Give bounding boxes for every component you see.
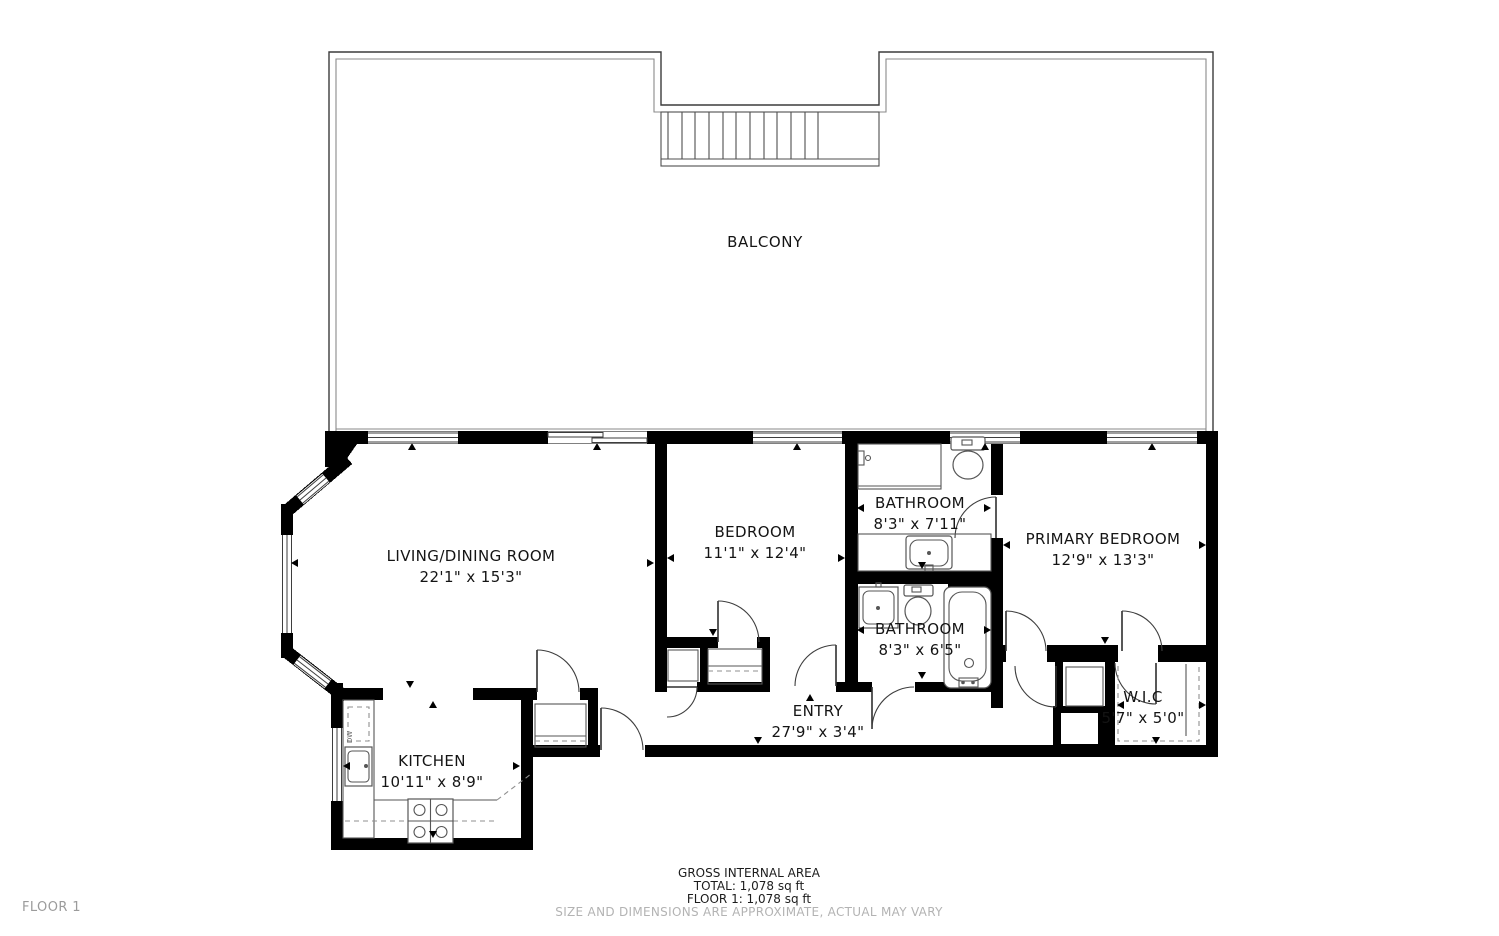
shower: [858, 444, 941, 489]
room-dims-living: 22'1" x 15'3": [420, 568, 523, 586]
hall-nook-shelf: [1066, 667, 1103, 706]
room-dims-kitchen: 10'11" x 8'9": [381, 773, 484, 791]
room-label-wic: W.I.C: [1123, 688, 1163, 706]
room-label-bathroom1: BATHROOM: [875, 494, 965, 512]
room-label-bathroom2: BATHROOM: [875, 620, 965, 638]
room-dims-bedroom: 11'1" x 12'4": [704, 544, 807, 562]
balcony-label: BALCONY: [727, 233, 803, 251]
stove: [408, 799, 453, 843]
room-label-living: LIVING/DINING ROOM: [387, 547, 556, 565]
room-dims-wic: 5'7" x 5'0": [1101, 709, 1184, 727]
room-label-entry: ENTRY: [793, 702, 844, 720]
footer: GROSS INTERNAL AREA TOTAL: 1,078 sq ft F…: [22, 866, 943, 919]
room-label-primary-bedroom: PRIMARY BEDROOM: [1026, 530, 1181, 548]
footer-title: GROSS INTERNAL AREA: [678, 866, 821, 880]
floor-plan-svg: BALCONY LIVING/DINING ROOM 22'1" x 15'3"…: [0, 0, 1499, 936]
room-dims-entry: 27'9" x 3'4": [772, 723, 865, 741]
floor-label: FLOOR 1: [22, 900, 81, 915]
room-dims-bathroom2: 8'3" x 6'5": [878, 641, 961, 659]
room-label-bedroom: BEDROOM: [714, 523, 795, 541]
room-dims-primary-bedroom: 12'9" x 13'3": [1052, 551, 1155, 569]
toilet: [951, 437, 985, 479]
floor-plan-page: BALCONY LIVING/DINING ROOM 22'1" x 15'3"…: [0, 0, 1499, 936]
footer-total: TOTAL: 1,078 sq ft: [693, 879, 805, 893]
toilet: [904, 585, 933, 625]
dishwasher-label: DW: [346, 731, 354, 743]
closet-shelf: [708, 649, 762, 684]
room-label-kitchen: KITCHEN: [398, 752, 466, 770]
room-dims-bathroom1: 8'3" x 7'11": [874, 515, 967, 533]
closet-shelf: [535, 704, 586, 747]
footer-floor-area: FLOOR 1: 1,078 sq ft: [687, 892, 812, 906]
entry-cubby: [668, 650, 698, 681]
footer-disclaimer: SIZE AND DIMENSIONS ARE APPROXIMATE, ACT…: [555, 905, 943, 919]
stairs: [661, 112, 879, 166]
